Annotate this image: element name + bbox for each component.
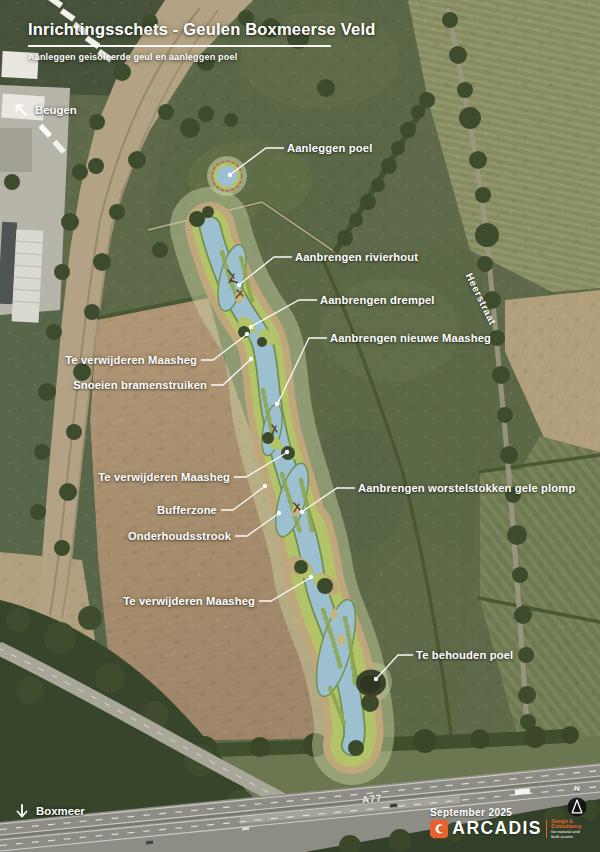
annotation-aanbrengen-drempel: Aanbrengen drempel [320, 294, 435, 306]
annotation-onderhoudsstrook: Onderhoudsstrook [128, 530, 231, 542]
title-block: Inrichtingsschets - Geulen Boxmeerse Vel… [28, 20, 375, 62]
page-title: Inrichtingsschets - Geulen Boxmeerse Vel… [28, 20, 375, 39]
tagline-line-3: built assets [551, 835, 600, 840]
direction-marker-boxmeer: Boxmeer [14, 803, 85, 819]
annotation-aanbrengen-nieuwe-maasheg: Aanbrengen nieuwe Maasheg [330, 332, 491, 344]
logo-divider [546, 820, 547, 838]
annotation-te-verwijderen-maasheg-1: Te verwijderen Maasheg [65, 354, 197, 366]
north-arrow-icon [564, 784, 590, 824]
annotation-te-verwijderen-maasheg-3: Te verwijderen Maasheg [123, 595, 255, 607]
plan-sheet: Inrichtingsschets - Geulen Boxmeerse Vel… [0, 0, 600, 852]
map-date: September 2025 [430, 807, 512, 818]
new-pond [207, 156, 247, 196]
arcadis-logo-icon [430, 819, 448, 839]
direction-label: Beugen [35, 104, 77, 116]
aerial-map-image [0, 0, 600, 852]
annotation-aanbrengen-rivierhout: Aanbrengen rivierhout [295, 251, 418, 263]
arrow-up-left-icon [13, 102, 29, 118]
arrow-down-icon [14, 803, 30, 819]
annotation-aanleggen-poel: Aanleggen poel [287, 142, 372, 154]
direction-marker-beugen: Beugen [13, 102, 77, 118]
annotation-snoeien-bramenstruiken: Snoeien bramenstruiken [73, 379, 207, 391]
title-underline [28, 45, 331, 47]
annotation-te-verwijderen-maasheg-2: Te verwijderen Maasheg [98, 471, 230, 483]
road-label-a77: A77 [361, 792, 382, 805]
annotation-aanbrengen-worstelstokken: Aanbrengen worstelstokken gele plomp [358, 482, 575, 494]
annotation-te-behouden-poel: Te behouden poel [416, 649, 513, 661]
direction-label: Boxmeer [36, 805, 85, 817]
page-subtitle: Aanleggen geisoleerde geul en aanleggen … [28, 52, 375, 62]
annotation-bufferzone: Bufferzone [157, 504, 217, 516]
arcadis-wordmark: ARCADIS [452, 820, 542, 838]
north-arrow: N [564, 784, 590, 824]
